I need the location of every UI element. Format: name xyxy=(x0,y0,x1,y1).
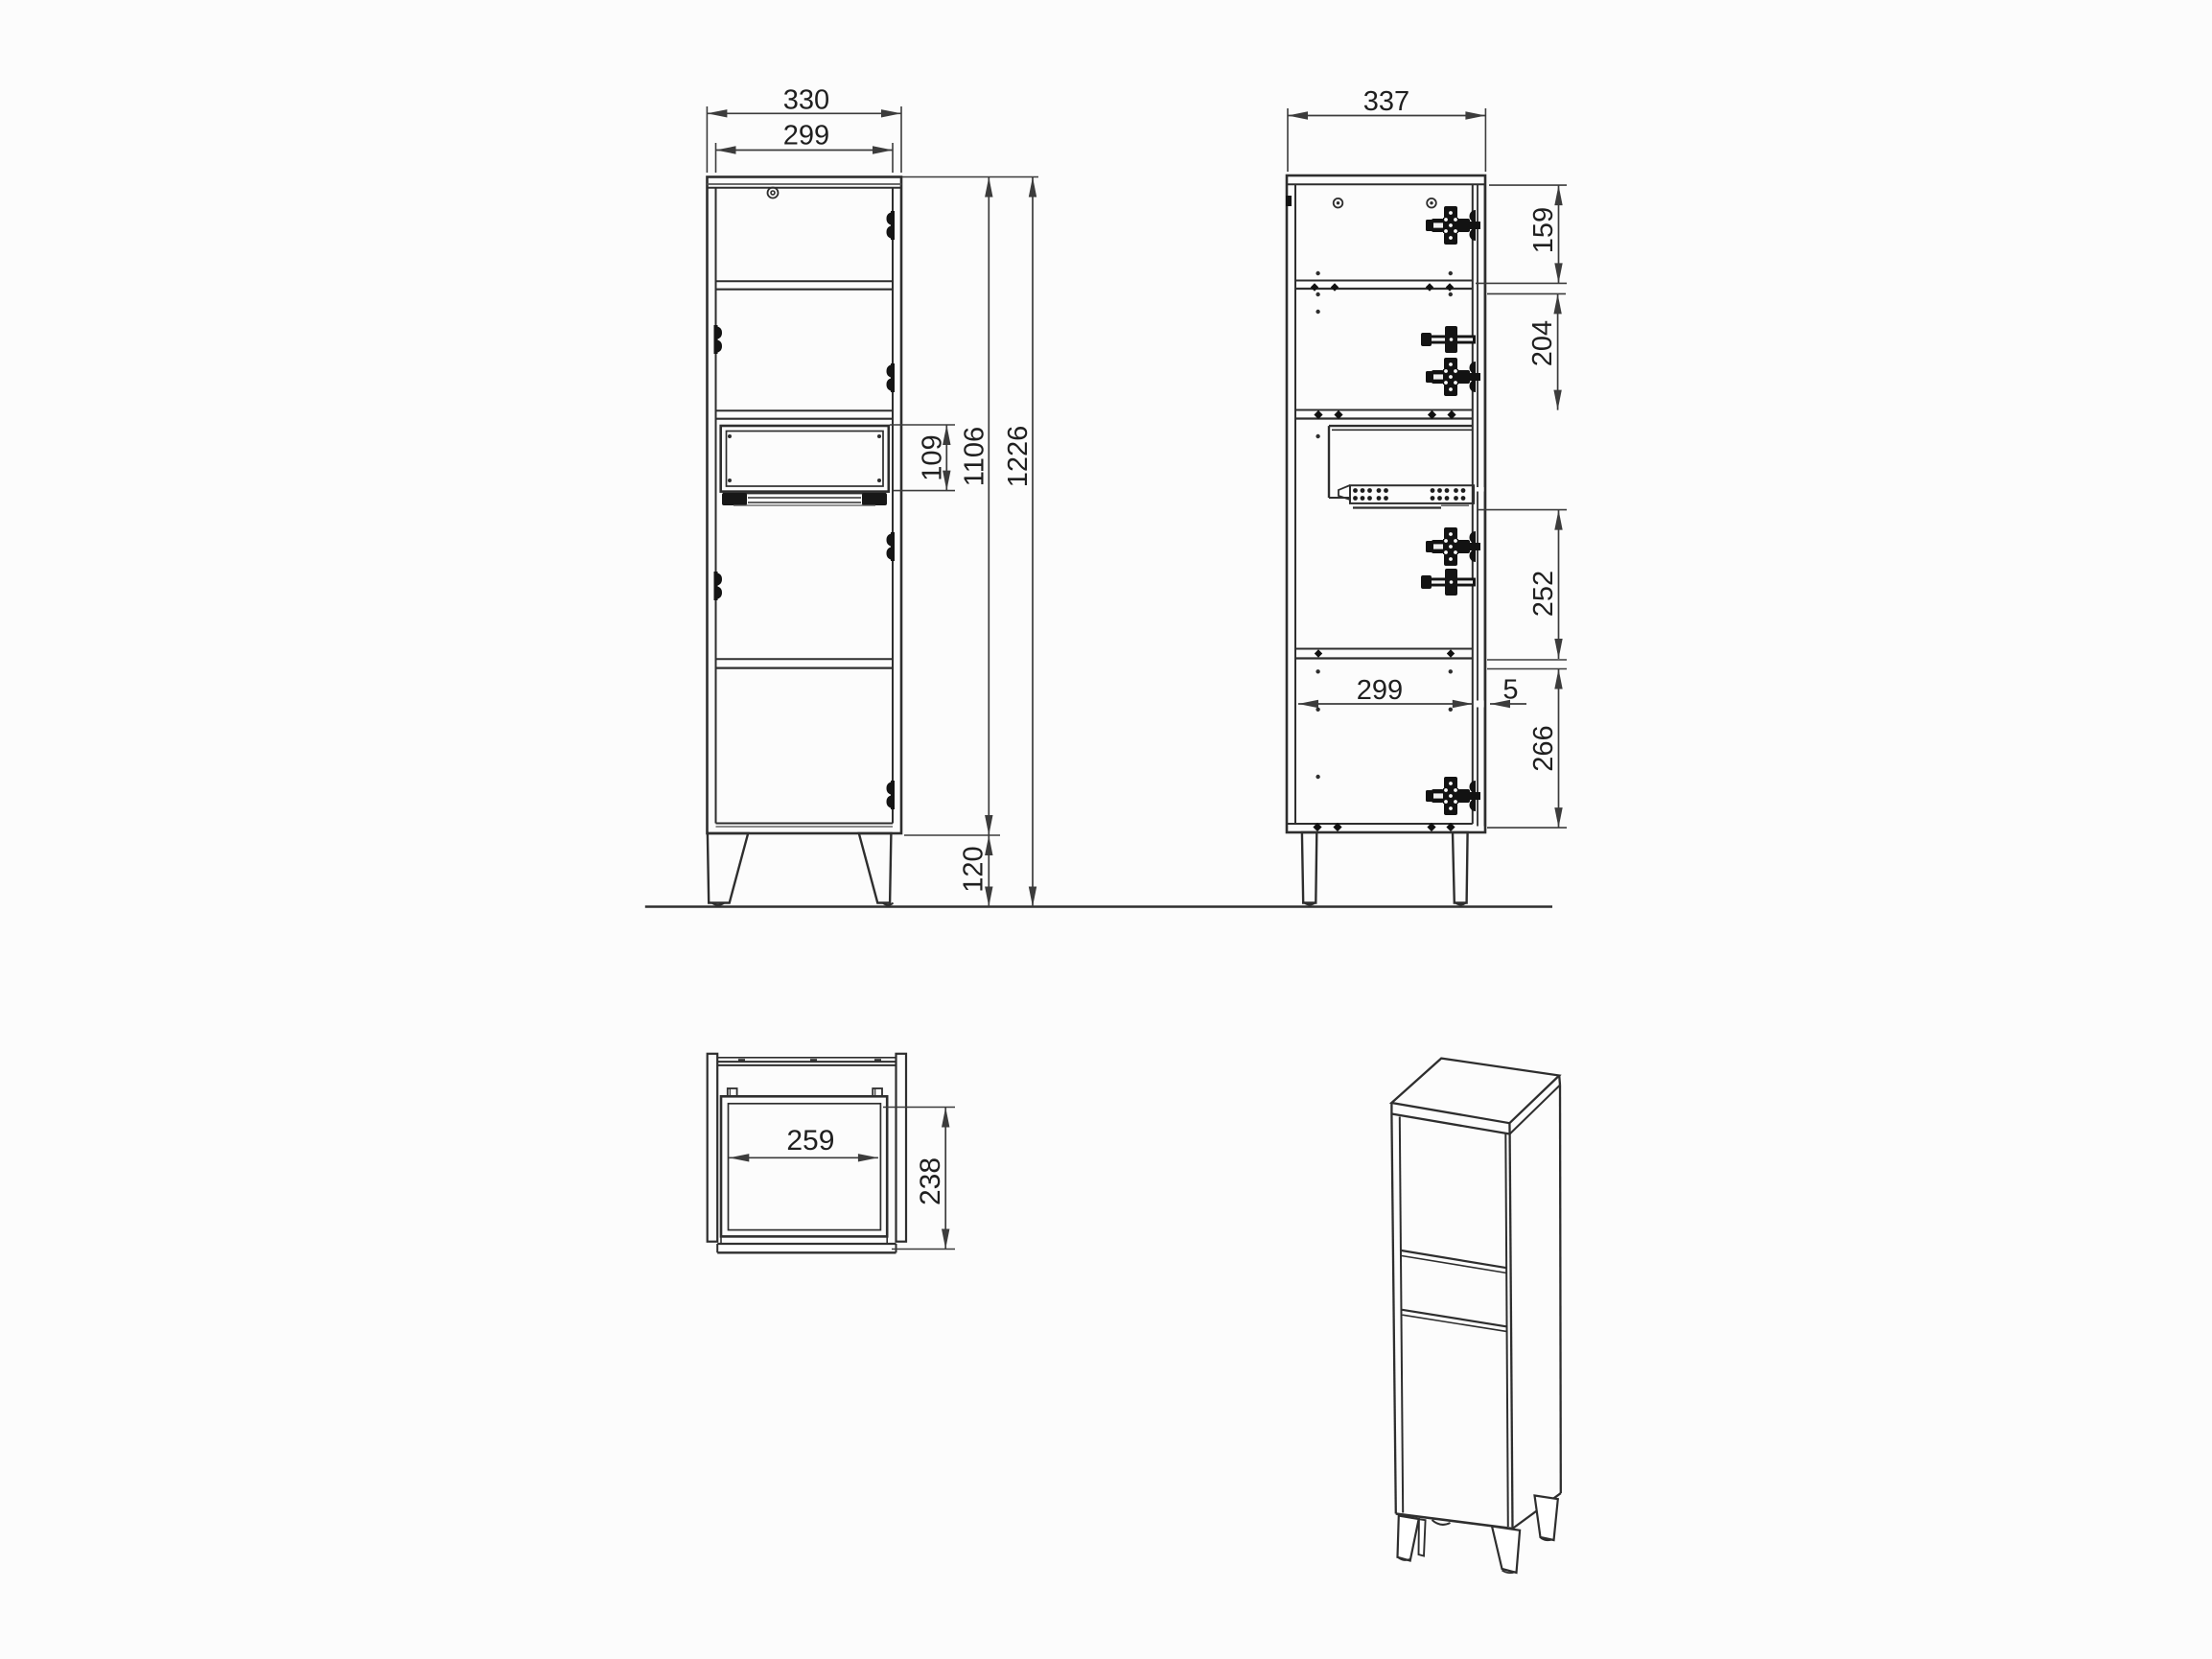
svg-text:299: 299 xyxy=(783,121,829,152)
svg-text:299: 299 xyxy=(1357,675,1403,706)
svg-text:120: 120 xyxy=(959,846,990,892)
svg-text:259: 259 xyxy=(786,1125,834,1157)
svg-text:238: 238 xyxy=(915,1157,946,1205)
svg-text:252: 252 xyxy=(1528,571,1559,617)
svg-text:266: 266 xyxy=(1528,725,1559,771)
svg-text:337: 337 xyxy=(1363,86,1409,117)
svg-text:204: 204 xyxy=(1527,320,1558,366)
svg-text:159: 159 xyxy=(1528,207,1559,253)
svg-text:1106: 1106 xyxy=(959,427,990,486)
svg-text:5: 5 xyxy=(1502,675,1518,706)
svg-text:109: 109 xyxy=(917,434,947,480)
svg-text:1226: 1226 xyxy=(1003,426,1034,488)
svg-text:330: 330 xyxy=(783,85,829,116)
